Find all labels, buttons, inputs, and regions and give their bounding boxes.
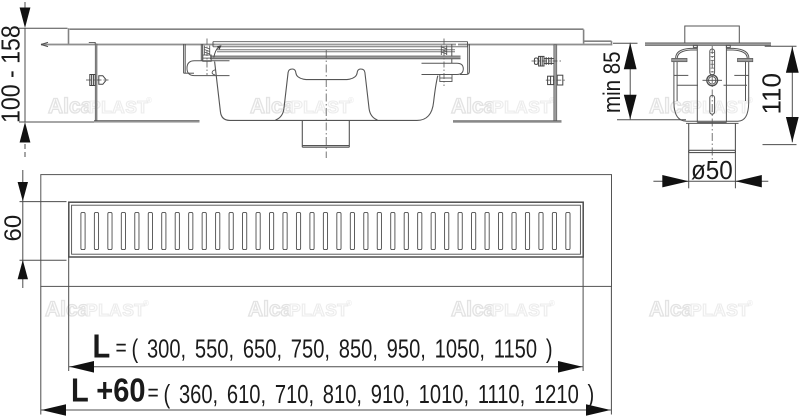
svg-text:Alca: Alca xyxy=(48,95,93,118)
svg-text:=: = xyxy=(148,378,159,406)
svg-text:®: ® xyxy=(747,299,753,308)
svg-text:L +60: L +60 xyxy=(71,372,146,409)
svg-text:PLAST: PLAST xyxy=(291,97,350,117)
svg-text:PLAST: PLAST xyxy=(492,300,551,320)
svg-text:Alca: Alca xyxy=(248,298,293,321)
svg-text:®: ® xyxy=(747,96,753,105)
svg-text:( 300, 550, 650, 750, 850, 950: ( 300, 550, 650, 750, 850, 950, 1050, 11… xyxy=(132,334,553,363)
svg-text:®: ® xyxy=(146,96,152,105)
svg-text:Alca: Alca xyxy=(250,95,295,118)
svg-text:PLAST: PLAST xyxy=(690,300,749,320)
svg-text:PLAST: PLAST xyxy=(289,300,348,320)
svg-text:60: 60 xyxy=(0,215,27,242)
svg-text:PLAST: PLAST xyxy=(86,300,145,320)
svg-text:Alca: Alca xyxy=(451,95,496,118)
svg-text:( 360, 610, 710, 810, 910, 101: ( 360, 610, 710, 810, 910, 1010, 1110, 1… xyxy=(164,380,595,409)
svg-text:ø50: ø50 xyxy=(691,156,733,185)
svg-text:®: ® xyxy=(348,96,354,105)
svg-text:100 - 158: 100 - 158 xyxy=(0,25,26,123)
svg-text:Alca: Alca xyxy=(649,298,694,321)
svg-text:®: ® xyxy=(346,299,352,308)
svg-text:®: ® xyxy=(549,299,555,308)
svg-text:min 85: min 85 xyxy=(598,51,625,113)
svg-text:PLAST: PLAST xyxy=(492,97,551,117)
svg-text:110: 110 xyxy=(757,73,787,114)
svg-text:Alca: Alca xyxy=(649,95,694,118)
svg-text:=: = xyxy=(116,333,127,361)
svg-text:Alca: Alca xyxy=(451,298,496,321)
svg-text:Alca: Alca xyxy=(45,298,90,321)
svg-text:®: ® xyxy=(143,299,149,308)
svg-text:PLAST: PLAST xyxy=(690,97,749,117)
svg-text:L: L xyxy=(93,328,111,365)
svg-text:PLAST: PLAST xyxy=(89,97,148,117)
